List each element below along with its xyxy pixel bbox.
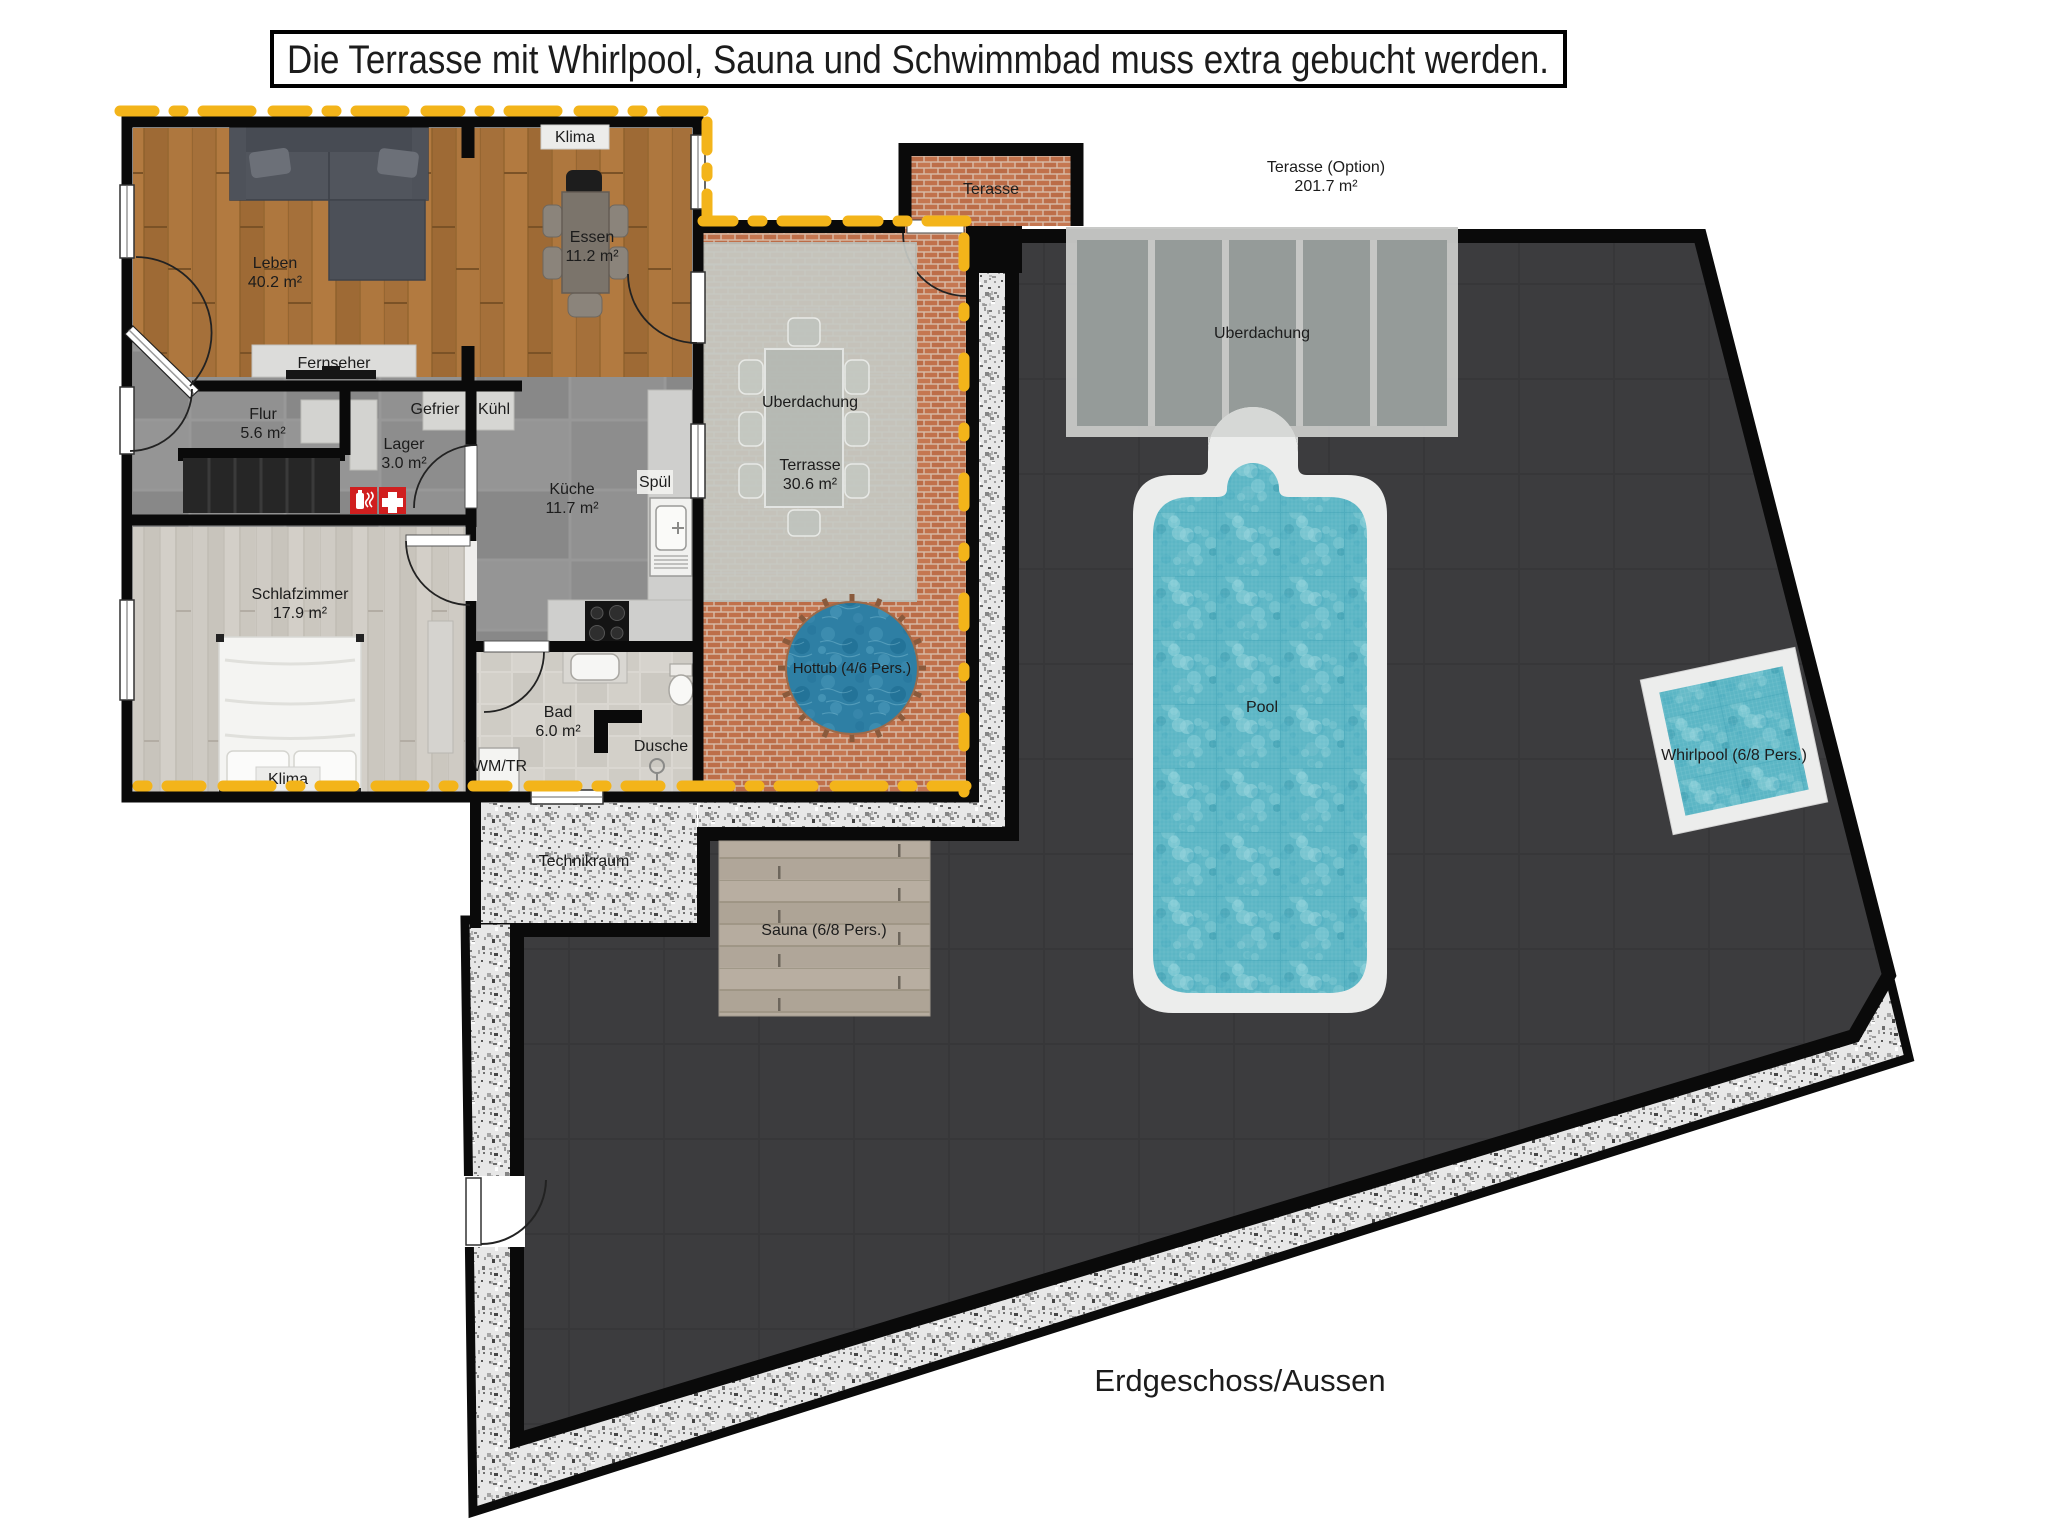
svg-text:Essen: Essen xyxy=(570,229,614,246)
svg-text:Technikraum: Technikraum xyxy=(539,853,630,870)
svg-text:Schlafzimmer: Schlafzimmer xyxy=(252,586,350,603)
svg-text:Terasse (Option): Terasse (Option) xyxy=(1267,159,1385,176)
svg-text:40.2 m²: 40.2 m² xyxy=(248,274,303,291)
svg-text:Uberdachung: Uberdachung xyxy=(762,394,858,411)
svg-text:Kühl: Kühl xyxy=(478,401,510,418)
svg-text:3.0 m²: 3.0 m² xyxy=(381,455,427,472)
svg-text:Klima: Klima xyxy=(555,129,595,146)
svg-text:Spül: Spül xyxy=(639,474,671,491)
svg-text:Dusche: Dusche xyxy=(634,738,688,755)
svg-text:Uberdachung: Uberdachung xyxy=(1214,325,1310,342)
svg-text:Hottub (4/6 Pers.): Hottub (4/6 Pers.) xyxy=(793,660,911,677)
svg-text:WM/TR: WM/TR xyxy=(473,758,527,775)
svg-text:Flur: Flur xyxy=(249,406,277,423)
svg-text:Leben: Leben xyxy=(253,255,298,272)
svg-text:17.9 m²: 17.9 m² xyxy=(273,605,328,622)
svg-text:Terasse: Terasse xyxy=(963,181,1019,198)
svg-text:Sauna (6/8 Pers.): Sauna (6/8 Pers.) xyxy=(761,922,886,939)
svg-text:Küche: Küche xyxy=(549,481,594,498)
svg-text:11.2 m²: 11.2 m² xyxy=(565,248,619,265)
svg-text:Whirlpool (6/8 Pers.): Whirlpool (6/8 Pers.) xyxy=(1661,747,1807,764)
svg-text:30.6 m²: 30.6 m² xyxy=(783,476,838,493)
svg-text:Die Terrasse mit Whirlpool, Sa: Die Terrasse mit Whirlpool, Sauna und Sc… xyxy=(287,38,1549,82)
svg-text:Gefrier: Gefrier xyxy=(411,401,461,418)
svg-text:Lager: Lager xyxy=(384,436,426,453)
svg-text:5.6 m²: 5.6 m² xyxy=(240,425,286,442)
svg-text:Terrasse: Terrasse xyxy=(779,457,840,474)
svg-text:201.7 m²: 201.7 m² xyxy=(1294,178,1358,195)
svg-text:11.7 m²: 11.7 m² xyxy=(545,500,599,517)
svg-text:Pool: Pool xyxy=(1246,699,1278,716)
svg-text:6.0 m²: 6.0 m² xyxy=(535,723,581,740)
svg-text:Bad: Bad xyxy=(544,704,572,721)
svg-text:Erdgeschoss/Aussen: Erdgeschoss/Aussen xyxy=(1094,1363,1385,1398)
